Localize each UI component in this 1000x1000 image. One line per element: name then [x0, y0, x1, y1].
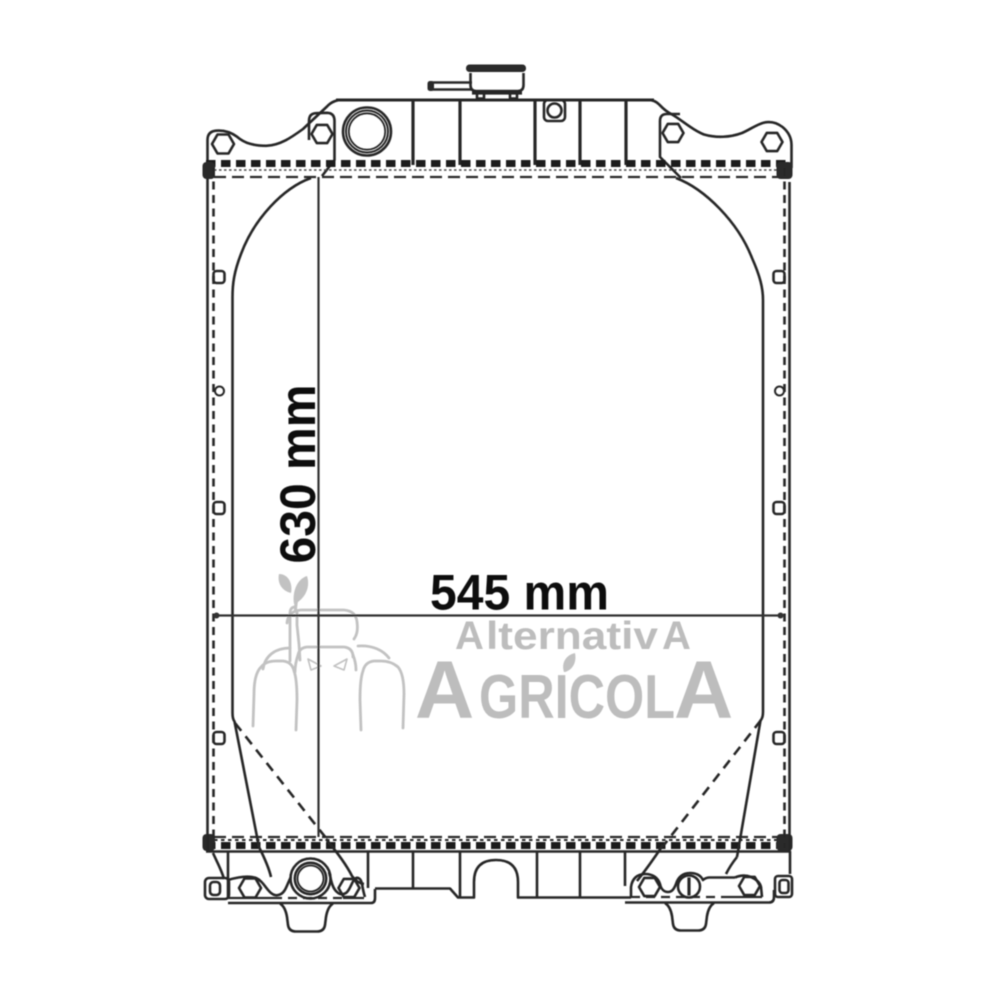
svg-text:545 mm: 545 mm — [430, 565, 609, 621]
svg-text:lternativ: lternativ — [486, 615, 658, 658]
svg-text:A: A — [674, 645, 733, 736]
svg-text:GRICOL: GRICOL — [479, 663, 675, 732]
svg-text:A: A — [415, 645, 474, 736]
svg-text:630 mm: 630 mm — [270, 385, 326, 564]
